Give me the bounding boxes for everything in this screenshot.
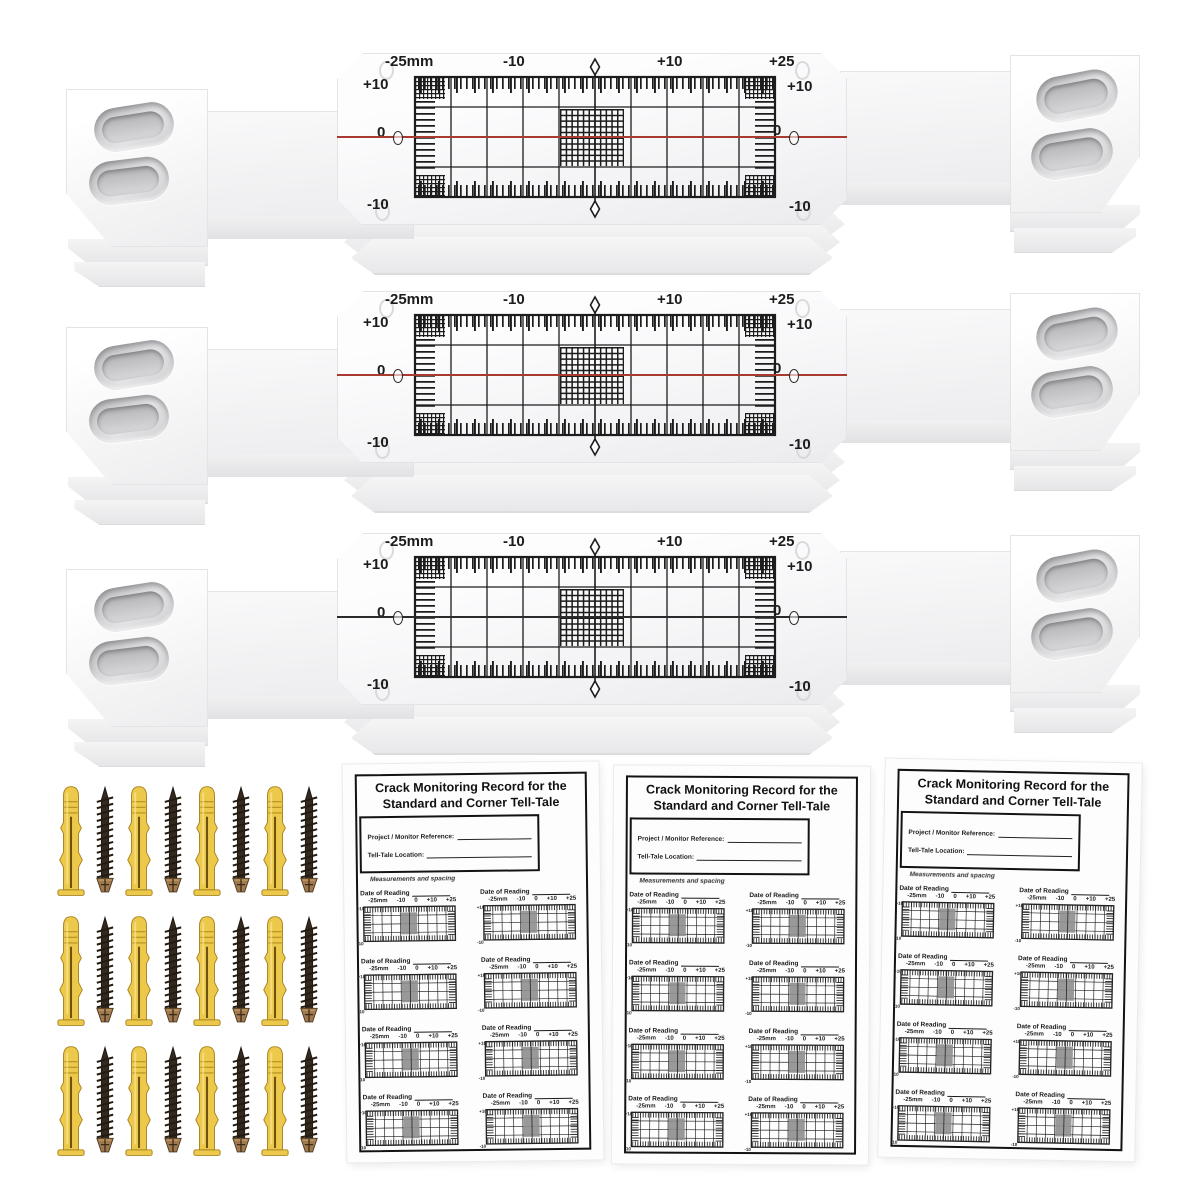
reference-box: Project / Monitor Reference: Tell-Tale L…	[359, 814, 540, 873]
fixing-pair	[192, 782, 252, 900]
mini-grid-wrap: +10 -10	[898, 899, 1003, 946]
date-of-reading-label: Date of Reading	[482, 1024, 532, 1032]
reading-entry: Date of Reading -25mm -10 0 +10 +25 +10 …	[363, 1091, 468, 1153]
mini-grid-wrap: +10 -10	[1016, 1037, 1121, 1084]
mini-scale-label: -10	[624, 1147, 631, 1152]
scale-label: +25	[769, 292, 794, 307]
fixing-pair	[260, 912, 320, 1030]
mini-grid-wrap: +10 -10	[1014, 1105, 1119, 1152]
sheet-note: Measurements and spacing	[370, 875, 455, 883]
date-of-reading-row: Date of Reading	[481, 954, 585, 964]
mini-scale-label: +10	[1013, 1039, 1021, 1045]
mini-scale-label: +10	[625, 1112, 633, 1117]
zero-marker-ring	[393, 131, 403, 145]
mini-scale-label: +10	[745, 1044, 753, 1049]
sheet-title-line2: Standard and Corner Tell-Tale	[614, 798, 870, 816]
scale-label: -10	[503, 534, 525, 549]
date-of-reading-label: Date of Reading	[897, 1021, 947, 1029]
screw	[231, 782, 251, 900]
mini-scale-label: -10	[625, 1011, 632, 1016]
scale-label: +10	[363, 77, 388, 92]
mini-grid	[748, 1110, 846, 1151]
mini-grid	[1016, 1037, 1115, 1079]
screw	[231, 1042, 251, 1160]
screw	[299, 782, 319, 900]
date-of-reading-label: Date of Reading	[629, 891, 679, 898]
scale-label: -10	[789, 199, 811, 214]
mini-scale-label: +10	[358, 1043, 366, 1048]
product-photo-canvas: -25mm -10 +10 +25 +10 0 -10 +10 0 -10	[0, 0, 1200, 1200]
location-field: Tell-Tale Location:	[368, 839, 532, 859]
reading-entry: Date of Reading -25mm -10 0 +10 +25 +10 …	[748, 1026, 852, 1088]
stacked-plate-edge	[351, 237, 833, 275]
mini-grid-wrap: +10 -10	[894, 1103, 999, 1150]
crack-monitor-tell-tale: -25mm -10 +10 +25 +10 0 -10 +10 0 -10	[62, 291, 1142, 541]
fixing-pair	[192, 1042, 252, 1160]
mini-scale-label: +10	[477, 905, 485, 910]
mini-grid-wrap: +10 -10	[749, 906, 853, 952]
reading-entry: Date of Reading -25mm -10 0 +10 +25 +10 …	[361, 955, 466, 1017]
reading-entry: Date of Reading -25mm -10 0 +10 +25 +10 …	[628, 1093, 732, 1155]
location-label: Tell-Tale Location:	[368, 852, 425, 860]
mini-grid-wrap: +10 -10	[362, 1039, 467, 1085]
mini-scale-label: -10	[625, 1079, 632, 1084]
mini-scale-label: -10	[359, 1078, 366, 1083]
screw	[163, 912, 183, 1030]
mini-grid-wrap: +10 -10	[628, 1041, 732, 1087]
crack-monitor-tell-tale: -25mm -10 +10 +25 +10 0 -10 +10 0 -10	[62, 53, 1142, 303]
date-of-reading-row: Date of Reading	[749, 890, 853, 900]
mini-scale-label: +10	[625, 976, 633, 981]
date-of-reading-label: Date of Reading	[628, 1095, 678, 1102]
mini-grid-wrap: +10 -10	[363, 1107, 468, 1153]
mini-grid	[480, 902, 578, 943]
mini-scale-label: +10	[359, 1111, 367, 1116]
record-sheet: Crack Monitoring Record for the Standard…	[878, 759, 1142, 1162]
mini-grid	[483, 1106, 581, 1147]
record-sheet: Crack Monitoring Record for the Standard…	[612, 765, 870, 1164]
date-of-reading-row: Date of Reading	[629, 957, 733, 967]
date-of-reading-label: Date of Reading	[481, 956, 531, 964]
mini-scale-label: +10	[358, 975, 366, 980]
mini-grid	[629, 905, 727, 946]
location-label: Tell-Tale Location:	[638, 853, 695, 860]
scale-label: +10	[787, 317, 812, 332]
fixing-pair	[124, 912, 184, 1030]
project-reference-field: Project / Monitor Reference:	[908, 818, 1072, 839]
mini-grid	[749, 974, 847, 1015]
screw	[231, 912, 251, 1030]
mini-scale-label: +10	[357, 907, 365, 912]
scale-label: -25mm	[385, 534, 433, 549]
wall-plug	[56, 1044, 86, 1160]
date-of-reading-label: Date of Reading	[1017, 1023, 1067, 1031]
mini-scale-label: -10	[892, 1072, 899, 1078]
mounting-block-right	[1010, 535, 1140, 693]
scale-label: +10	[657, 292, 682, 307]
date-of-reading-label: Date of Reading	[362, 1026, 412, 1034]
fixing-pair	[56, 912, 116, 1030]
wall-plug	[192, 914, 222, 1030]
date-of-reading-label: Date of Reading	[1015, 1091, 1065, 1099]
scale-label: -10	[789, 679, 811, 694]
wall-plug	[124, 1044, 154, 1160]
sheet-title: Crack Monitoring Record for the Standard…	[343, 777, 599, 813]
reading-entries: Date of Reading -25mm -10 0 +10 +25 +10 …	[360, 886, 589, 1151]
mini-grid-wrap: +10 -10	[897, 967, 1002, 1014]
date-of-reading-row: Date of Reading	[361, 955, 465, 965]
reading-entry: Date of Reading -25mm -10 0 +10 +25 +10 …	[629, 889, 733, 951]
mounting-block-right	[1010, 55, 1140, 213]
mini-scale-label: -10	[893, 1004, 900, 1010]
scale-label: -10	[367, 435, 389, 450]
mini-grid	[748, 1042, 846, 1083]
mini-grid-wrap: +10 -10	[1018, 901, 1123, 948]
mini-grid-wrap: +10 -10	[749, 974, 853, 1020]
screw	[299, 1042, 319, 1160]
mini-scale-label: -10	[480, 1144, 487, 1149]
mini-scale-label: +10	[478, 1041, 486, 1046]
write-in-line	[801, 966, 839, 967]
fixing-pair	[124, 1042, 184, 1160]
screw	[95, 782, 115, 900]
connector-arm-right	[840, 551, 1028, 663]
mini-grid	[628, 1041, 726, 1082]
mini-grid	[897, 967, 996, 1009]
reading-entry: Date of Reading -25mm -10 0 +10 +25 +10 …	[749, 890, 853, 952]
date-of-reading-label: Date of Reading	[895, 1089, 945, 1097]
scale-label: +10	[657, 54, 682, 69]
date-of-reading-label: Date of Reading	[749, 960, 799, 967]
mini-grid-wrap: +10 -10	[896, 1035, 1001, 1082]
wall-plug	[192, 784, 222, 900]
screw	[95, 912, 115, 1030]
stacked-plate-edge	[351, 717, 833, 755]
fixing-pair	[56, 782, 116, 900]
block-stack-edge	[73, 262, 205, 287]
scale-label: -10	[503, 292, 525, 307]
reading-entry: Date of Reading -25mm -10 0 +10 +25 +10 …	[749, 958, 853, 1020]
scale-label: -10	[789, 437, 811, 452]
mini-scale-label: -10	[744, 1147, 751, 1152]
mini-grid	[1014, 1105, 1113, 1147]
mini-grid	[1018, 901, 1117, 943]
block-stack-edge	[1014, 466, 1136, 491]
mini-scale-label: +10	[479, 1109, 487, 1114]
wall-plug	[56, 914, 86, 1030]
reading-entry: Date of Reading -25mm -10 0 +10 +25 +10 …	[482, 1022, 587, 1084]
scale-label: -25mm	[385, 292, 433, 307]
mounting-block-right	[1010, 293, 1140, 451]
reference-box: Project / Monitor Reference: Tell-Tale L…	[629, 817, 809, 875]
mini-scale-label: -10	[360, 1146, 367, 1151]
date-of-reading-row: Date of Reading	[749, 1026, 853, 1036]
scale-label: +10	[787, 79, 812, 94]
mini-grid	[1017, 969, 1116, 1011]
scale-label: -10	[367, 677, 389, 692]
reading-entry: Date of Reading -25mm -10 0 +10 +25 +10 …	[480, 886, 585, 948]
mini-grid-wrap: +10 -10	[629, 973, 733, 1019]
date-of-reading-row: Date of Reading	[362, 1023, 466, 1033]
reading-entry: Date of Reading -25mm -10 0 +10 +25 +10 …	[748, 1094, 852, 1156]
measurement-grid	[337, 291, 847, 463]
mini-scale-label: -10	[478, 1008, 485, 1013]
date-of-reading-label: Date of Reading	[748, 1096, 798, 1103]
sheet-title-line1: Crack Monitoring Record for the	[343, 777, 599, 796]
write-in-line	[802, 898, 840, 899]
connector-arm-right	[840, 309, 1028, 421]
date-of-reading-label: Date of Reading	[483, 1092, 533, 1100]
block-stack-edge	[1014, 228, 1136, 253]
mini-scale-label: +10	[893, 1037, 901, 1043]
mini-grid-wrap: +10 -10	[481, 970, 586, 1016]
screw	[299, 912, 319, 1030]
write-in-line	[427, 856, 532, 858]
reading-entry: Date of Reading -25mm -10 0 +10 +25 +10 …	[1018, 885, 1123, 948]
mini-scale-label: -10	[1013, 1006, 1020, 1012]
sheet-title-line2: Standard and Corner Tell-Tale	[343, 794, 599, 813]
mini-grid	[481, 970, 579, 1011]
fixing-pair	[192, 912, 252, 1030]
wall-plug	[260, 784, 290, 900]
date-of-reading-label: Date of Reading	[629, 959, 679, 966]
mini-scale-label: +10	[478, 973, 486, 978]
mini-scale-label: -10	[895, 936, 902, 942]
scale-label: -10	[503, 54, 525, 69]
mini-grid-wrap: +10 -10	[748, 1110, 852, 1156]
date-of-reading-row: Date of Reading	[482, 1022, 586, 1032]
sheet-title-line1: Crack Monitoring Record for the	[614, 781, 870, 799]
date-of-reading-label: Date of Reading	[1019, 887, 1069, 895]
date-of-reading-label: Date of Reading	[898, 953, 948, 961]
mini-scale-label: -10	[357, 942, 364, 947]
screw	[95, 1042, 115, 1160]
gauge-plate: -25mm -10 +10 +25 +10 0 -10 +10 0 -10	[337, 533, 847, 705]
mini-scale-label: +10	[745, 1112, 753, 1117]
date-of-reading-label: Date of Reading	[749, 892, 799, 899]
mini-scale-label: +10	[745, 976, 753, 981]
wall-plug	[260, 1044, 290, 1160]
wall-plug	[56, 784, 86, 900]
reading-entry: Date of Reading -25mm -10 0 +10 +25 +10 …	[894, 1087, 999, 1150]
mini-scale-label: -10	[745, 1011, 752, 1016]
connector-arm-right	[840, 71, 1028, 183]
mini-scale-label: -10	[1015, 938, 1022, 944]
project-reference-label: Project / Monitor Reference:	[367, 833, 454, 841]
center-reference-line	[325, 136, 859, 138]
reading-entry: Date of Reading -25mm -10 0 +10 +25 +10 …	[1014, 1089, 1119, 1152]
scale-label: -25mm	[385, 54, 433, 69]
mini-grid	[363, 1107, 461, 1148]
mini-scale-label: -10	[1012, 1074, 1019, 1080]
zero-marker-ring	[393, 611, 403, 625]
date-of-reading-row: Date of Reading	[749, 958, 853, 968]
mini-scale-label: -10	[745, 1079, 752, 1084]
block-stack-edge	[73, 742, 205, 767]
fixing-pair	[124, 782, 184, 900]
date-of-reading-row: Date of Reading	[748, 1094, 852, 1104]
mini-scale-label: +10	[746, 908, 754, 913]
mini-grid	[362, 1039, 460, 1080]
mini-grid	[894, 1103, 993, 1145]
center-reference-line	[325, 374, 859, 376]
mini-grid-wrap: +10 -10	[1017, 969, 1122, 1016]
mini-scale-label: +10	[895, 901, 903, 907]
reading-entry: Date of Reading -25mm -10 0 +10 +25 +10 …	[481, 954, 586, 1016]
write-in-line	[697, 860, 802, 862]
mini-scale-label: +10	[626, 908, 634, 913]
crack-monitor-tell-tale: -25mm -10 +10 +25 +10 0 -10 +10 0 -10	[62, 533, 1142, 783]
mini-scale-label: +10	[1011, 1107, 1019, 1113]
write-in-line	[681, 1034, 719, 1035]
date-of-reading-row: Date of Reading	[628, 1093, 732, 1103]
fixing-pair	[260, 782, 320, 900]
date-of-reading-row: Date of Reading	[483, 1090, 587, 1100]
fixing-pair	[56, 1042, 116, 1160]
project-reference-label: Project / Monitor Reference:	[638, 835, 725, 842]
mini-scale-label: +10	[1015, 903, 1023, 909]
reading-entry: Date of Reading -25mm -10 0 +10 +25 +10 …	[360, 887, 465, 949]
mini-scale-label: +10	[894, 969, 902, 975]
write-in-line	[681, 966, 719, 967]
date-of-reading-row: Date of Reading	[629, 1025, 733, 1035]
reading-entry: Date of Reading -25mm -10 0 +10 +25 +10 …	[898, 883, 1003, 946]
mini-scale-label: -10	[1011, 1142, 1018, 1148]
mounting-block-left	[66, 89, 208, 247]
mini-scale-label: -10	[477, 940, 484, 945]
zero-marker-ring	[789, 611, 799, 625]
block-stack-edge	[73, 500, 205, 525]
gauge-plate: -25mm -10 +10 +25 +10 0 -10 +10 0 -10	[337, 53, 847, 225]
gauge-plate: -25mm -10 +10 +25 +10 0 -10 +10 0 -10	[337, 291, 847, 463]
mini-grid	[896, 1035, 995, 1077]
date-of-reading-row: Date of Reading	[363, 1091, 467, 1101]
mini-scale-label: +10	[1014, 971, 1022, 977]
date-of-reading-label: Date of Reading	[629, 1027, 679, 1034]
reading-entries: Date of Reading -25mm -10 0 +10 +25 +10 …	[894, 883, 1125, 1149]
project-reference-field: Project / Monitor Reference:	[367, 821, 531, 841]
record-sheet: Crack Monitoring Record for the Standard…	[343, 761, 604, 1162]
reading-entry: Date of Reading -25mm -10 0 +10 +25 +10 …	[1017, 953, 1122, 1016]
mini-grid	[898, 899, 997, 941]
zero-marker-ring	[789, 131, 799, 145]
location-label: Tell-Tale Location:	[908, 847, 965, 855]
location-field: Tell-Tale Location:	[638, 842, 802, 861]
fixing-hardware-group	[56, 782, 334, 1160]
mounting-block-left	[66, 569, 208, 727]
wall-plug	[124, 784, 154, 900]
write-in-line	[967, 854, 1072, 857]
measurement-grid	[337, 533, 847, 705]
reading-entry: Date of Reading -25mm -10 0 +10 +25 +10 …	[628, 1025, 732, 1087]
block-stack-edge	[1014, 708, 1136, 733]
stacked-plate-edge	[351, 475, 833, 513]
sheet-note: Measurements and spacing	[639, 877, 724, 884]
mini-scale-label: +10	[892, 1105, 900, 1111]
scale-label: -10	[367, 197, 389, 212]
zero-marker-ring	[789, 369, 799, 383]
mini-scale-label: -10	[358, 1010, 365, 1015]
sheet-title: Crack Monitoring Record for the Standard…	[614, 781, 870, 815]
mini-scale-label: -10	[625, 943, 632, 948]
date-of-reading-label: Date of Reading	[361, 958, 411, 966]
reading-entry: Date of Reading -25mm -10 0 +10 +25 +10 …	[362, 1023, 467, 1085]
location-field: Tell-Tale Location:	[908, 836, 1072, 857]
mini-grid	[629, 973, 727, 1014]
reading-entries: Date of Reading -25mm -10 0 +10 +25 +10 …	[628, 889, 855, 1152]
screw	[163, 782, 183, 900]
date-of-reading-label: Date of Reading	[1018, 955, 1068, 963]
wall-plug	[260, 914, 290, 1030]
date-of-reading-label: Date of Reading	[363, 1094, 413, 1102]
mini-grid-wrap: +10 -10	[360, 903, 465, 949]
wall-plug	[192, 1044, 222, 1160]
fixing-pair	[260, 1042, 320, 1160]
date-of-reading-label: Date of Reading	[360, 890, 410, 898]
mini-grid-wrap: +10 -10	[483, 1106, 588, 1152]
scale-label: +25	[769, 534, 794, 549]
mini-grid	[361, 971, 459, 1012]
scale-label: +10	[363, 315, 388, 330]
measurement-grid	[337, 53, 847, 225]
scale-label: +10	[657, 534, 682, 549]
mini-grid	[482, 1038, 580, 1079]
mounting-block-left	[66, 327, 208, 485]
scale-label: +10	[363, 557, 388, 572]
date-of-reading-row: Date of Reading	[360, 887, 464, 897]
reading-entry: Date of Reading -25mm -10 0 +10 +25 +10 …	[629, 957, 733, 1019]
write-in-line	[681, 1102, 719, 1103]
reading-entry: Date of Reading -25mm -10 0 +10 +25 +10 …	[896, 1019, 1001, 1082]
mini-grid	[628, 1109, 726, 1150]
wall-plug	[124, 914, 154, 1030]
zero-marker-ring	[393, 369, 403, 383]
reading-entry: Date of Reading -25mm -10 0 +10 +25 +10 …	[897, 951, 1002, 1014]
scale-label: +25	[769, 54, 794, 69]
write-in-line	[682, 898, 720, 899]
mini-grid-wrap: +10 -10	[482, 1038, 587, 1084]
reading-entry: Date of Reading -25mm -10 0 +10 +25 +10 …	[483, 1090, 588, 1152]
reference-box: Project / Monitor Reference: Tell-Tale L…	[900, 811, 1081, 871]
mini-grid-wrap: +10 -10	[480, 902, 585, 948]
mini-scale-label: -10	[479, 1076, 486, 1081]
date-of-reading-label: Date of Reading	[899, 885, 949, 893]
scale-label: +10	[787, 559, 812, 574]
mini-grid	[360, 903, 458, 944]
mini-scale-label: +10	[625, 1044, 633, 1049]
sheet-title: Crack Monitoring Record for the Standard…	[885, 775, 1142, 812]
write-in-line	[801, 1034, 839, 1035]
mini-grid	[749, 906, 847, 947]
date-of-reading-row: Date of Reading	[480, 886, 584, 896]
mini-grid-wrap: +10 -10	[629, 905, 733, 951]
mini-scale-label: -10	[891, 1140, 898, 1146]
reading-entry: Date of Reading -25mm -10 0 +10 +25 +10 …	[1016, 1021, 1121, 1084]
date-of-reading-label: Date of Reading	[480, 888, 530, 896]
write-in-line	[801, 1102, 839, 1103]
date-of-reading-label: Date of Reading	[749, 1028, 799, 1035]
center-reference-line	[325, 616, 859, 618]
mini-scale-label: -10	[745, 943, 752, 948]
date-of-reading-row: Date of Reading	[629, 889, 733, 899]
mini-grid-wrap: +10 -10	[628, 1109, 732, 1155]
screw	[163, 1042, 183, 1160]
mini-grid-wrap: +10 -10	[748, 1042, 852, 1088]
project-reference-field: Project / Monitor Reference:	[638, 824, 802, 843]
mini-grid-wrap: +10 -10	[361, 971, 466, 1017]
